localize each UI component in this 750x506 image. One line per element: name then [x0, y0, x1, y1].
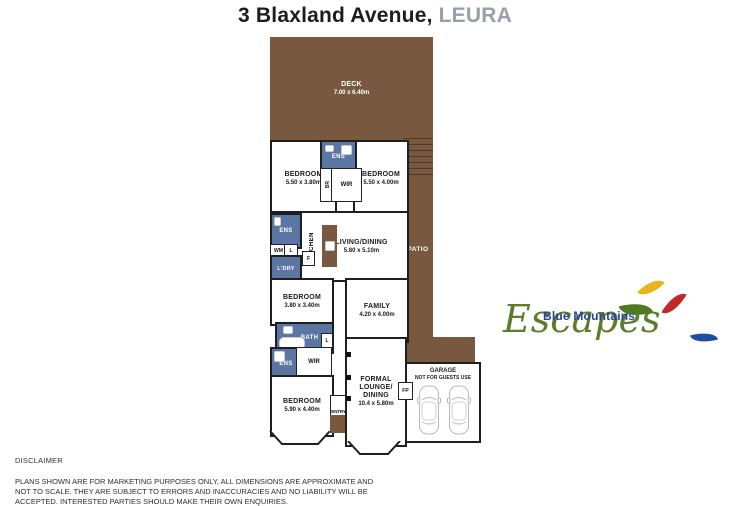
- shower-icon: [274, 351, 285, 362]
- leaf-icon-blue: [690, 329, 718, 346]
- column: [346, 375, 351, 380]
- toilet-icon: [274, 217, 281, 226]
- sink-icon: [325, 241, 335, 251]
- floor-plan: DECK 7.00 x 6.40m PATIO GARAGE NOT FOR G…: [265, 35, 485, 455]
- bay-window: [267, 431, 333, 447]
- room-bedroom-mid: BEDROOM 3.80 x 3.40m: [270, 278, 334, 326]
- car-icon: [447, 384, 471, 436]
- disclaimer-line: PLANS SHOWN ARE FOR MARKETING PURPOSES O…: [15, 477, 373, 487]
- garage-label: GARAGE NOT FOR GUESTS USE: [407, 368, 479, 381]
- kitchen-label: KITCHEN: [305, 220, 319, 275]
- fridge: F: [302, 251, 315, 266]
- disclaimer-body: PLANS SHOWN ARE FOR MARKETING PURPOSES O…: [15, 477, 373, 506]
- patio-extension: [403, 337, 475, 362]
- agency-logo: Escapes Blue Mountains: [495, 275, 725, 370]
- room-family: FAMILY 4.20 x 4.00m: [345, 278, 409, 343]
- deck-label: DECK 7.00 x 6.40m: [334, 81, 369, 97]
- toilet-icon: [325, 145, 334, 152]
- suburb-text: LEURA: [439, 4, 512, 27]
- address-text: 3 Blaxland Avenue,: [238, 4, 433, 27]
- living-dining-label: LIVING/DINING 5.80 x 5.10m: [335, 239, 387, 255]
- disclaimer-title: DISCLAIMER: [15, 456, 373, 465]
- fireplace: FP: [398, 382, 413, 400]
- leaf-icon-red: [661, 288, 686, 319]
- walk-in-robe-top: WIR: [331, 168, 362, 202]
- disclaimer-line: ACCEPTED. INTERESTED PARTIES SHOULD MAKE…: [15, 497, 373, 506]
- disclaimer-line: NOT TO SCALE. THEY ARE SUBJECT TO ERRORS…: [15, 487, 373, 497]
- floorplan-page: { "header": { "address": "3 Blaxland Ave…: [0, 0, 750, 500]
- disclaimer: DISCLAIMER PLANS SHOWN ARE FOR MARKETING…: [15, 456, 373, 506]
- garage: GARAGE NOT FOR GUESTS USE: [405, 362, 481, 443]
- bay-window: [343, 441, 405, 457]
- walk-in-robe-bottom: WIR: [296, 347, 332, 377]
- linen-closet: L: [321, 333, 333, 348]
- column: [346, 396, 351, 401]
- deck-area: DECK 7.00 x 6.40m: [270, 37, 433, 140]
- kitchen-island: [322, 225, 337, 267]
- column: [346, 352, 351, 357]
- basin-icon: [283, 326, 293, 334]
- page-title: 3 Blaxland Avenue,LEURA: [0, 4, 750, 28]
- shower-icon: [341, 145, 352, 155]
- room-bedroom-bottom: BEDROOM 5.90 x 4.40m: [270, 375, 334, 437]
- car-icon: [417, 384, 441, 436]
